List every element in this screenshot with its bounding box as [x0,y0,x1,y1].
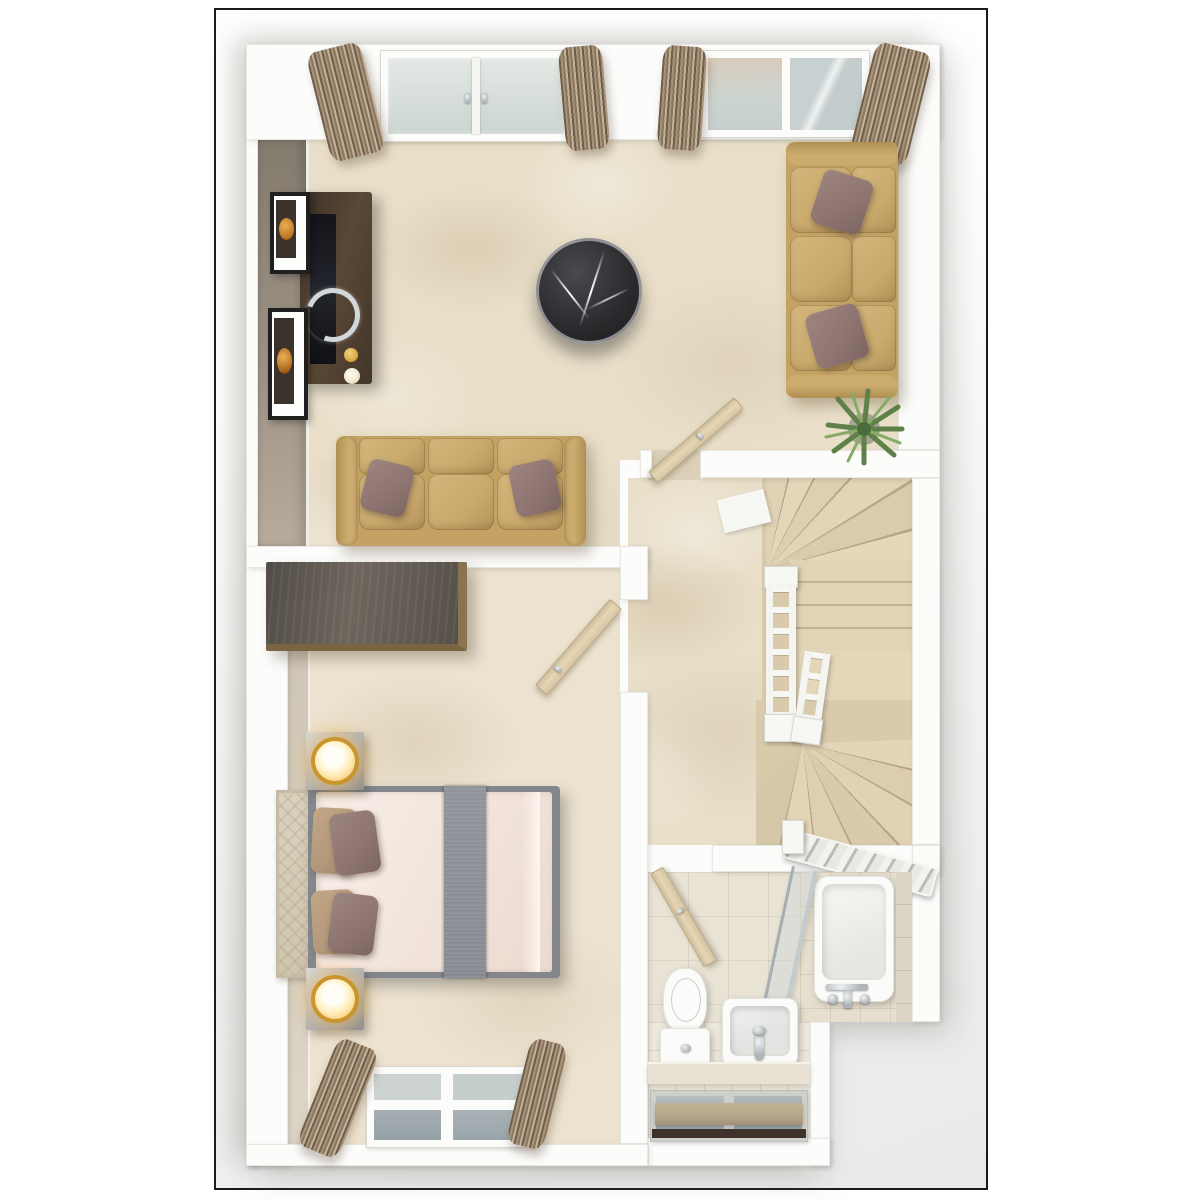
bathroom-window [650,1090,808,1142]
bathtub-faucet-icon [822,976,878,1010]
balustrade-spindles [766,586,796,718]
curtain-panel [656,45,707,152]
bedside-lamp-icon [311,975,359,1023]
flush-button-icon [681,1044,691,1052]
roller-blind [655,1103,803,1125]
outer-wall-right-stairs [912,478,940,845]
door-handle-icon [676,907,685,914]
bed-pillow-mauve [327,891,380,956]
toilet [660,968,710,1068]
duvet-fold [522,792,540,972]
newel-post [764,566,798,588]
toilet-seat [663,968,707,1032]
bathtub-basin [822,884,886,980]
faucet-knob [828,994,838,1004]
bedroom-hall-wall-lower [620,692,648,1144]
tiled-wall-strip [896,872,912,1022]
faucet-spout [844,990,852,1008]
sofa-seat-cushion [428,474,494,530]
sofa-backrest [428,438,494,474]
sofa-backrest [852,236,896,302]
handrail-cap [782,820,804,854]
gold-candle-icon [344,348,358,362]
bathroom-tiled-ledge [648,1062,810,1084]
hallway-floor [628,478,762,845]
french-window-mullion [472,58,480,134]
stair-bottom-handrail [786,820,938,876]
sofa-armrest [564,436,586,546]
palm-plant-icon [822,385,906,469]
double-bed [308,786,560,978]
bedroom-hall-wall-upper [620,546,648,600]
bathtub-deck [800,872,912,1022]
bedroom-window-pane [374,1074,441,1100]
stairs-straight-flight [790,560,912,660]
double-window-glass-left [708,58,782,130]
french-window [380,50,572,142]
outer-wall-bottom-bathroom [648,1138,830,1166]
wardrobe [266,562,467,651]
double-window [700,50,870,138]
faucet-knob [860,994,870,1004]
marble-vein [586,288,630,311]
double-window-glass-right [790,58,862,130]
marble-vein [579,251,606,328]
artwork-disc [279,218,294,240]
window-handle-icon [482,93,487,103]
page-background [0,0,1200,1200]
toilet-lid-line [671,978,701,1022]
door-handle-icon [554,665,563,673]
artwork-disc [277,348,292,374]
apartment-footprint [246,44,940,1166]
newel-post [790,716,823,746]
round-marble-coffee-table [536,238,642,344]
bedroom-window-pane [374,1110,441,1140]
basin-faucet-base [753,1026,766,1035]
sofa-armrest [786,142,898,165]
basin-faucet-icon [755,1032,764,1060]
floorplan-image [214,8,988,1190]
bedside-lamp-icon [311,737,359,785]
curtain-panel [558,44,611,151]
sofa-seat-cushion [790,236,852,302]
nightstand-top [306,732,364,790]
tv-media-console [300,192,372,384]
washbasin [722,998,798,1066]
bed-runner [444,786,486,978]
marble-vein [550,269,590,319]
nightstand-bottom [306,968,364,1030]
sofa-armrest [336,436,358,546]
blind-bottom-rail [652,1129,806,1138]
potted-palm-plant [822,385,906,469]
window-handle-icon [465,93,470,103]
picture-frame-lower [268,308,308,420]
bed-pillow-mauve [328,809,382,877]
three-seat-sofa-left [336,436,586,546]
artwork [274,318,294,404]
picture-frame-upper [270,192,310,274]
three-seat-sofa-right [786,142,898,398]
white-candle-icon [344,368,360,384]
stairs-top-winder [762,478,912,570]
door-handle-icon [696,432,704,441]
artwork [276,200,296,258]
